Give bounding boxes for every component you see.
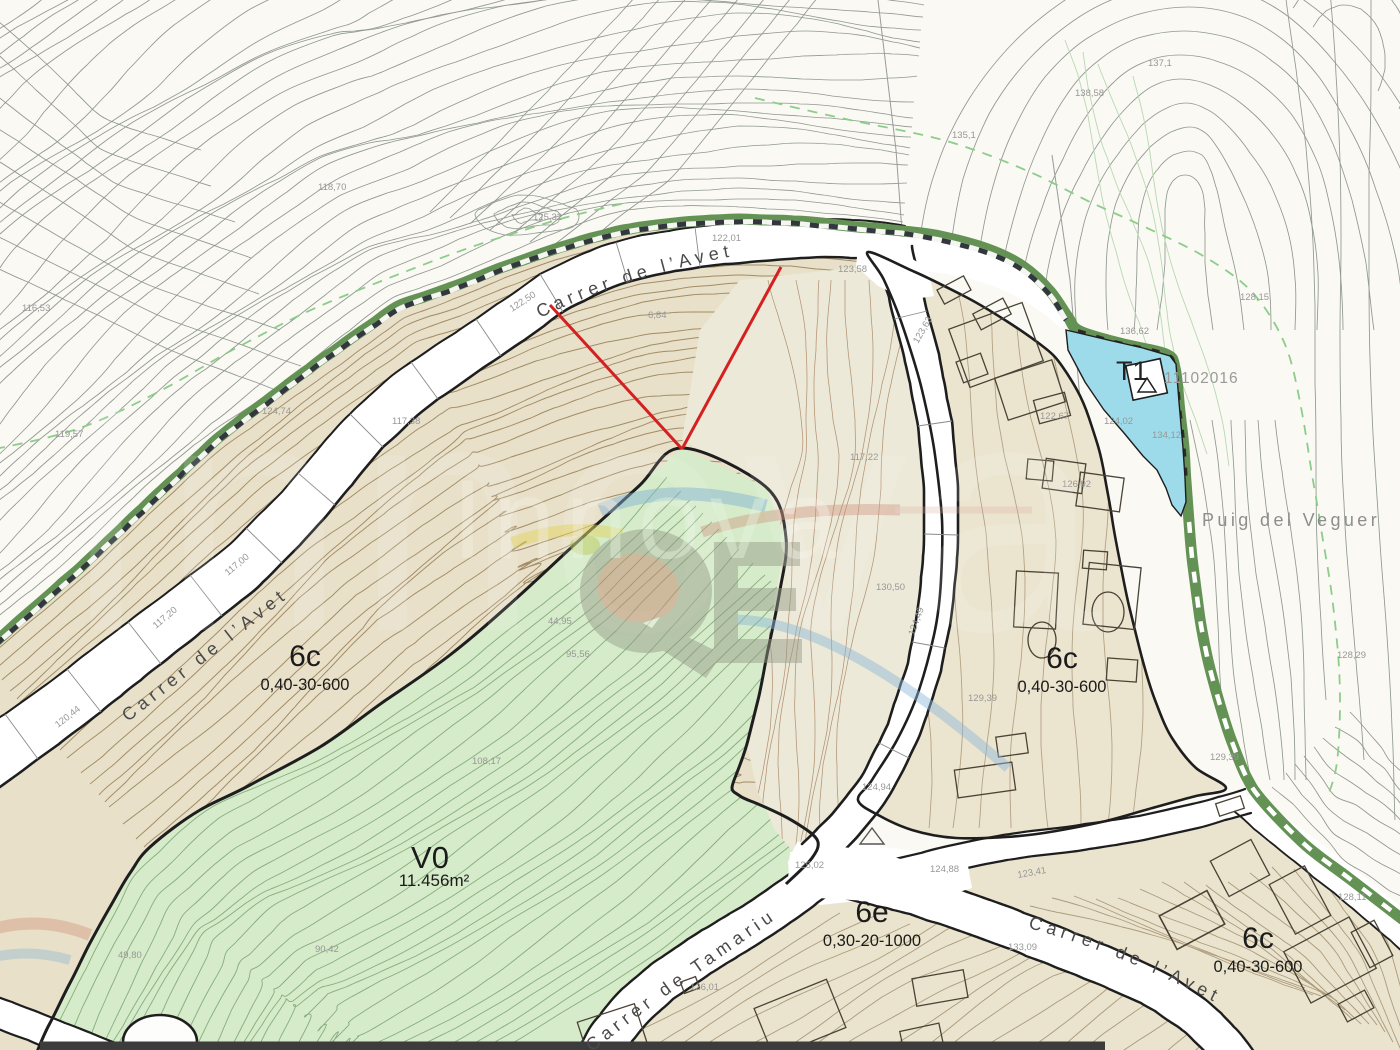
svg-text:V0: V0 (411, 840, 449, 875)
svg-text:90,42: 90,42 (315, 944, 339, 955)
svg-text:133,09: 133,09 (1008, 942, 1037, 953)
svg-text:11.456m²: 11.456m² (399, 871, 470, 890)
svg-text:125,02: 125,02 (795, 860, 824, 871)
svg-text:T1: T1 (1116, 356, 1148, 386)
svg-text:6c: 6c (1242, 922, 1274, 955)
svg-text:136,62: 136,62 (1120, 326, 1149, 337)
svg-text:108,17: 108,17 (472, 756, 501, 767)
svg-text:123,58: 123,58 (838, 264, 867, 275)
svg-text:128,15: 128,15 (1240, 292, 1269, 303)
svg-text:6e: 6e (855, 896, 888, 929)
svg-text:124,94: 124,94 (862, 782, 891, 793)
svg-text:49,80: 49,80 (118, 950, 142, 961)
svg-text:118,70: 118,70 (318, 182, 346, 193)
svg-text:0,30-20-1000: 0,30-20-1000 (823, 932, 921, 950)
svg-text:129,39: 129,39 (1210, 752, 1239, 763)
svg-text:126,01: 126,01 (690, 982, 719, 993)
svg-text:138,58: 138,58 (1075, 88, 1104, 99)
svg-text:128,29: 128,29 (1337, 650, 1366, 661)
svg-text:125,32: 125,32 (533, 212, 562, 223)
svg-text:0,40-30-600: 0,40-30-600 (1214, 958, 1303, 976)
svg-text:122,01: 122,01 (712, 233, 741, 244)
svg-text:Innova: Innova (452, 457, 848, 582)
svg-text:11102016: 11102016 (1164, 370, 1239, 387)
svg-text:135,1: 135,1 (952, 130, 976, 141)
svg-text:134,12: 134,12 (1152, 430, 1181, 441)
svg-text:137,1: 137,1 (1148, 58, 1172, 69)
svg-text:124,88: 124,88 (930, 864, 959, 875)
svg-text:6,84: 6,84 (648, 310, 667, 321)
svg-text:116,53: 116,53 (22, 303, 50, 314)
svg-text:128,11: 128,11 (1338, 892, 1366, 903)
svg-text:Puig del Veguer: Puig del Veguer (1202, 510, 1380, 530)
